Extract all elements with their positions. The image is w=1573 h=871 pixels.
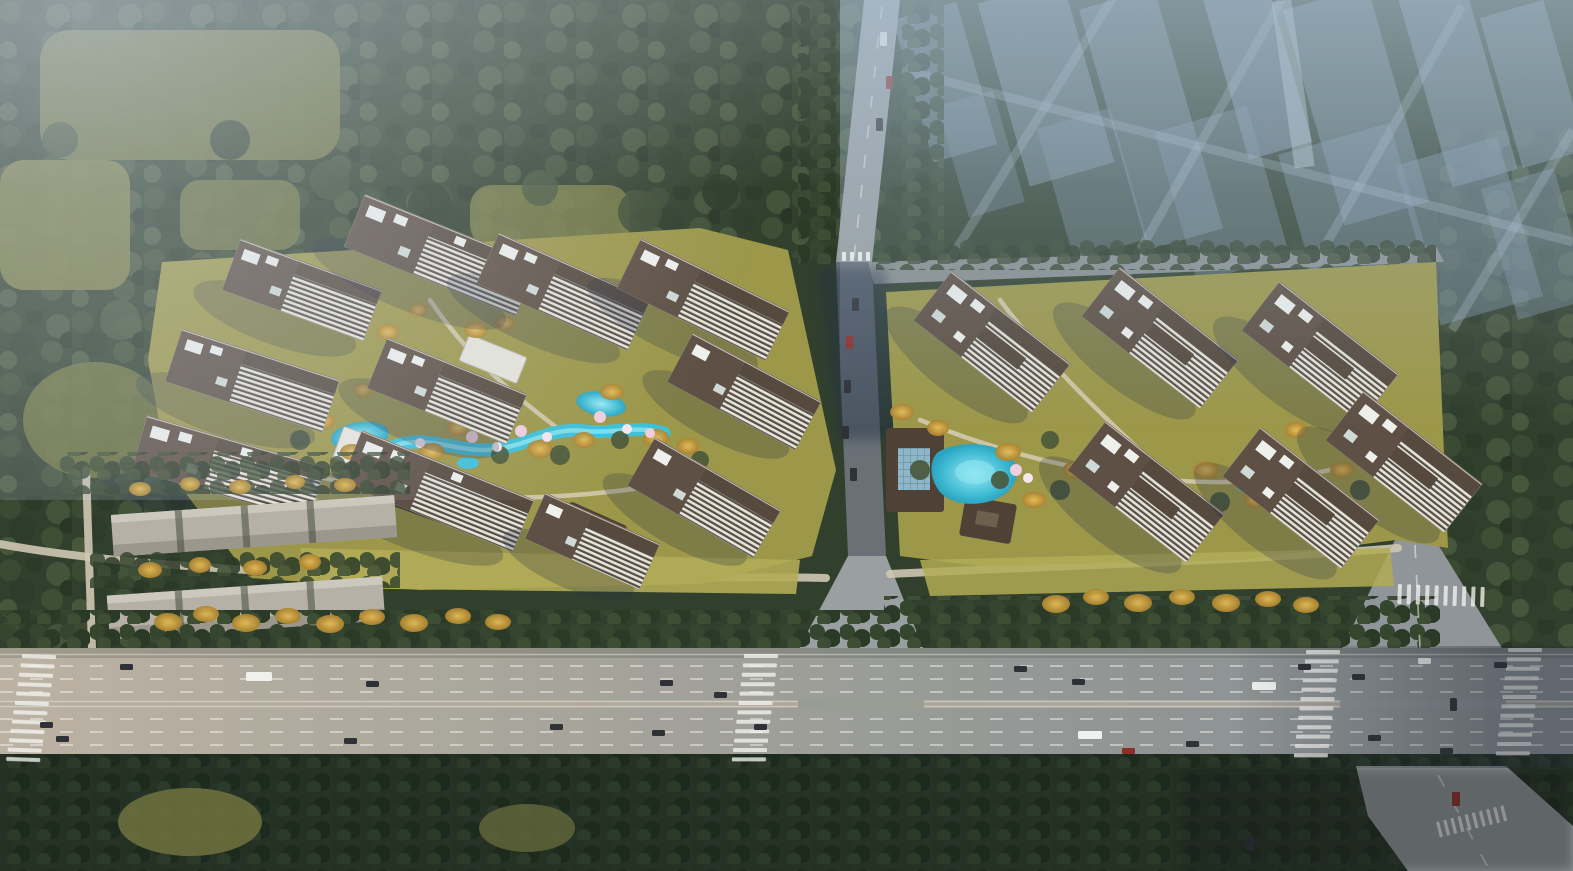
golden-tree [154,613,182,631]
forest-clearing [479,804,575,852]
car [56,736,69,742]
blossom-tree [1023,473,1033,483]
car [660,680,673,686]
golden-tree [359,609,385,625]
golden-tree [232,614,260,632]
car [120,664,133,670]
golden-tree [193,606,219,622]
golden-tree [1083,589,1109,605]
car [344,738,357,744]
golden-tree [243,560,267,576]
golden-tree [275,608,301,624]
bus [1078,731,1102,739]
golden-tree [189,557,211,573]
aerial-render-figure: Aerial rendering of a new residential de… [0,0,1573,871]
golden-tree [1124,594,1152,612]
car [754,724,767,730]
golden-tree [1169,589,1195,605]
car [1122,748,1135,754]
car [1072,679,1085,685]
car [1014,666,1027,672]
golden-tree [1212,594,1240,612]
golden-tree [138,562,162,578]
truck [246,672,272,681]
corner-shadow [1180,768,1573,871]
golden-tree [1293,597,1319,613]
car [714,692,727,698]
car [550,724,563,730]
golden-tree [485,614,511,630]
aerial-render-canvas: Aerial rendering of a new residential de… [0,0,1573,871]
golden-tree [1042,595,1070,613]
golden-tree [445,608,471,624]
car [366,681,379,687]
golden-tree [316,615,344,633]
golden-tree [1022,492,1046,508]
car [1186,741,1199,747]
east-fog [840,0,1573,440]
intersection-shadow [1240,646,1573,768]
car [40,722,53,728]
golden-tree [299,554,321,570]
forest-intersection-corner [1492,520,1573,648]
car [652,730,665,736]
forest-clearing [118,788,262,856]
median-break [798,699,924,709]
golden-tree [1255,591,1281,607]
golden-tree [400,614,428,632]
